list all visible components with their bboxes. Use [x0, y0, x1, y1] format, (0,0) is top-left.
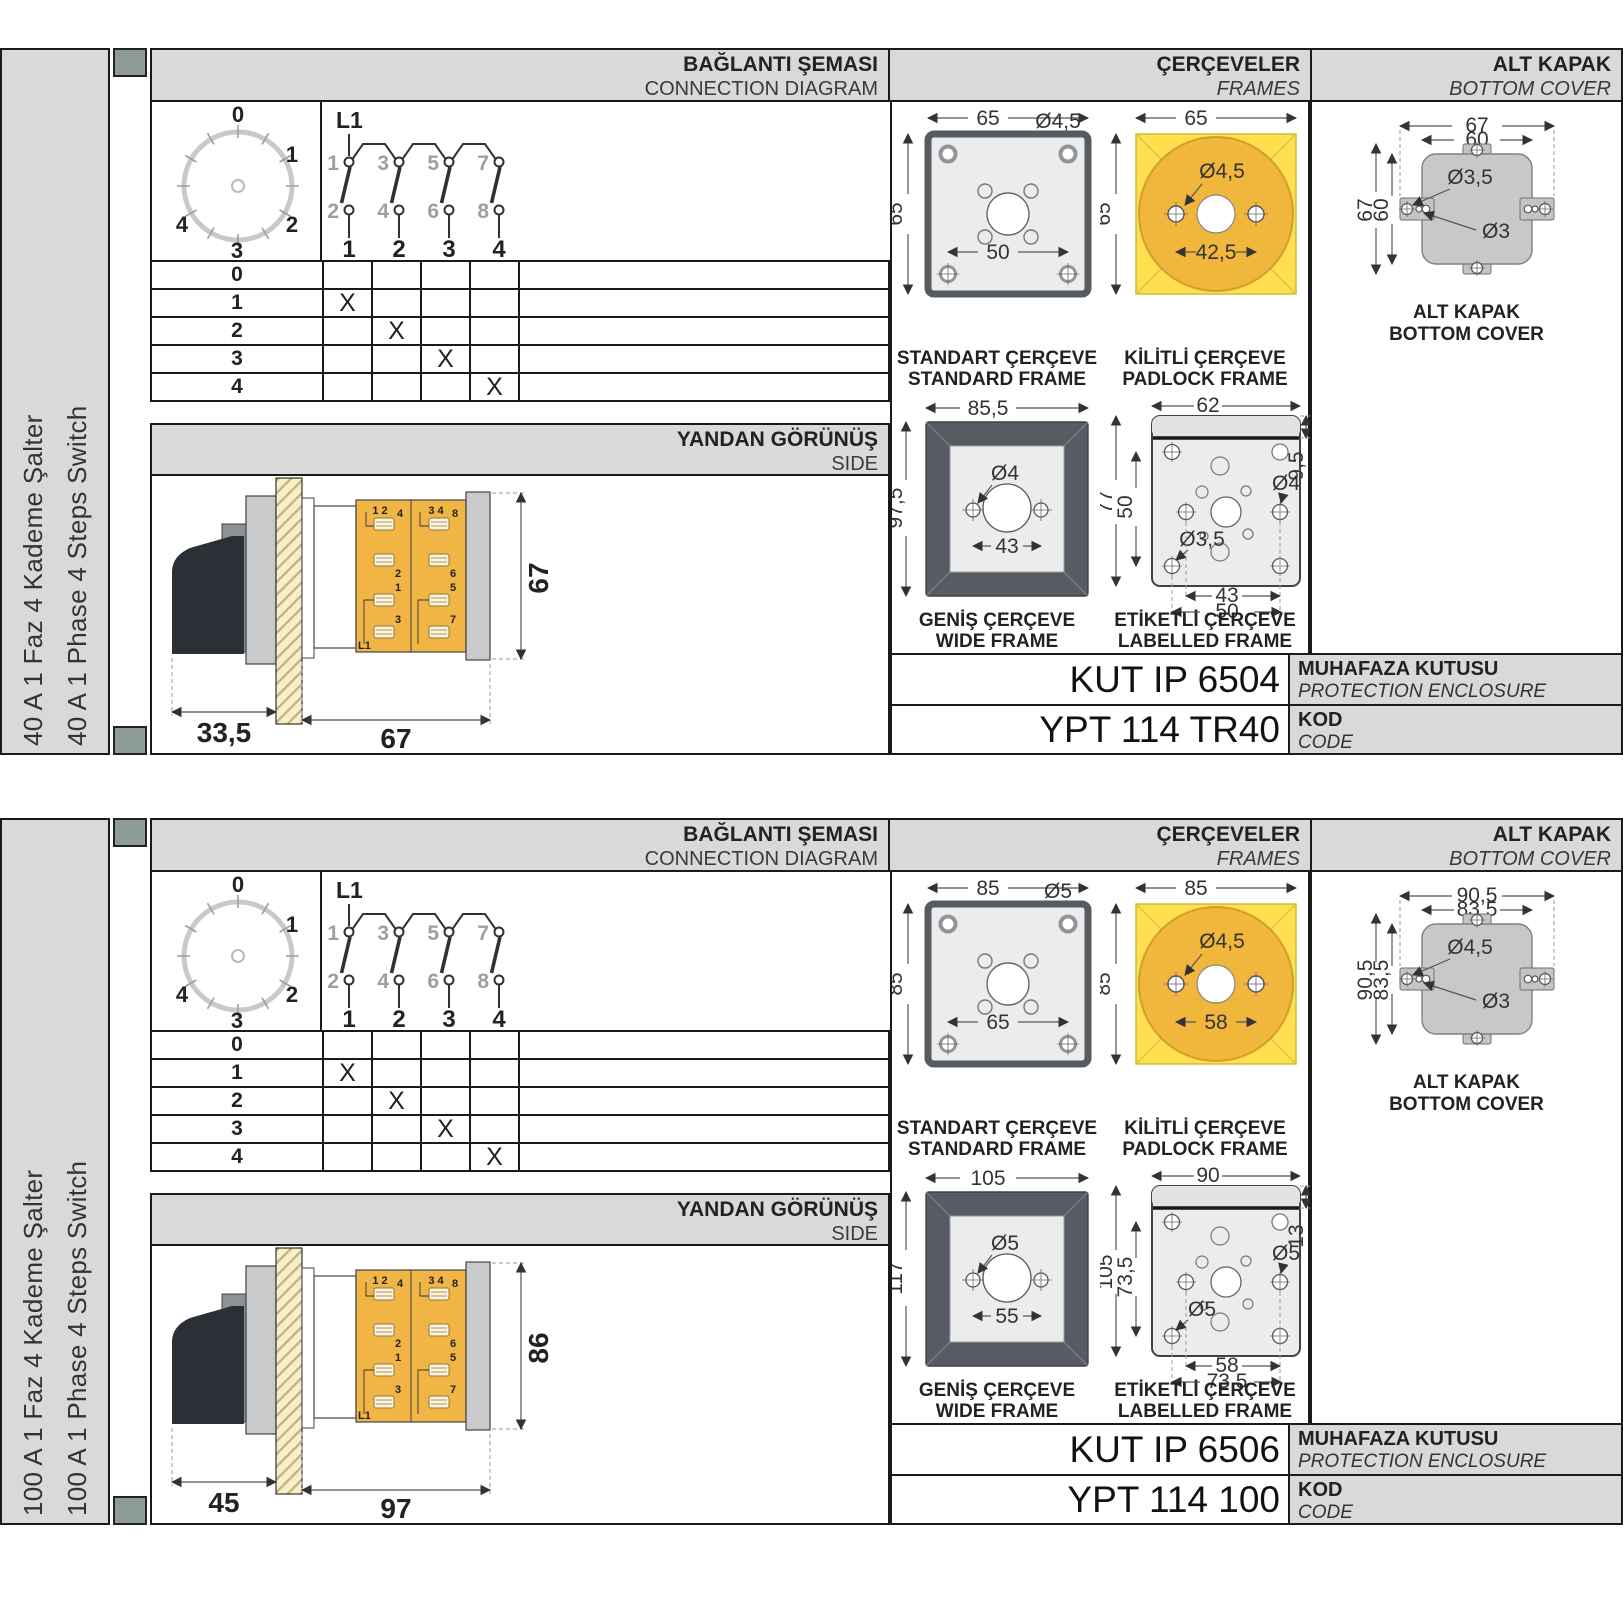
contact-mark — [471, 346, 520, 372]
step-number: 3 — [152, 346, 324, 372]
contact-mark — [422, 290, 471, 316]
step-number: 4 — [152, 374, 324, 400]
bottom-cover-drawing: 90,5 83,5 90,5 83,5 — [1312, 880, 1623, 1070]
std-center-hole — [987, 963, 1029, 1005]
contact-label-1: 1 — [327, 152, 339, 175]
contact-mark — [422, 1060, 471, 1086]
product-code: YPT 114 TR40 — [1039, 709, 1280, 750]
step-table-row: 4 X — [150, 372, 890, 402]
block-left-t2: 2 — [395, 1338, 401, 1350]
switch-schematic-cell: L1 — [320, 100, 892, 262]
section-content: BAĞLANTI ŞEMASI CONNECTION DIAGRAM ÇERÇE… — [150, 818, 1623, 1525]
height-dimension: 67 — [492, 493, 554, 659]
block-left-t1: 4 — [397, 508, 404, 520]
enclosure-label-en: PROTECTION ENCLOSURE — [1298, 681, 1621, 702]
side-view-drawing-cell: 1 2 4 2 1 3 L1 3 4 8 6 5 7 86 — [150, 1244, 890, 1525]
block-right-t3: 5 — [450, 582, 456, 594]
output-label-4: 4 — [492, 236, 506, 260]
lab-hole1-label: Ø4 — [1272, 472, 1300, 495]
contact-mark — [373, 1116, 422, 1142]
rear-plate — [466, 1262, 490, 1430]
wide-center-hole — [983, 484, 1031, 532]
contact-mark — [324, 1032, 373, 1058]
dial-pos-1: 1 — [286, 912, 298, 937]
phase-label: L1 — [336, 877, 363, 903]
output-label-2: 2 — [392, 1006, 405, 1030]
contact-mark — [422, 1088, 471, 1114]
lab-caption-tr: ETİKETLİ ÇERÇEVE — [1100, 610, 1310, 631]
output-label-2: 2 — [392, 236, 405, 260]
wide-caption-tr: GENİŞ ÇERÇEVE — [892, 610, 1102, 631]
contact-mark — [324, 1116, 373, 1142]
block-left-t4: 3 — [395, 1384, 401, 1396]
frames-panel: 85 Ø5 85 — [890, 870, 1310, 1425]
product-code-cell: YPT 114 100 — [890, 1474, 1290, 1525]
empty-cell — [520, 346, 888, 372]
dial-pos-3: 3 — [231, 238, 243, 260]
side-header-en: SIDE — [152, 1222, 878, 1246]
contact-mark — [324, 374, 373, 400]
product-section: 40 A 1 Faz 4 Kademe Şalter 40 A 1 Phase … — [0, 48, 1623, 755]
contact-label-4: 4 — [377, 200, 389, 223]
output-label-3: 3 — [442, 1006, 455, 1030]
wide-caption-tr: GENİŞ ÇERÇEVE — [892, 1380, 1102, 1401]
output-label-3: 3 — [442, 236, 455, 260]
labelled-frame-caption: ETİKETLİ ÇERÇEVE LABELLED FRAME — [1100, 610, 1310, 652]
std-height-label: 85 — [892, 972, 907, 995]
labelled-frame-block: 62 9,5 77 50 — [1100, 394, 1310, 656]
block-left-corner-label: 1 2 — [372, 1275, 387, 1287]
step-table-row: 3 X — [150, 344, 890, 374]
wide-center-hole — [983, 1254, 1031, 1302]
std-hole-label: Ø5 — [1044, 880, 1072, 903]
lab-top-band — [1152, 1186, 1300, 1208]
wide-width-label: 85,5 — [968, 397, 1009, 420]
contact-mark — [422, 262, 471, 288]
switch-schematic: L1 — [322, 872, 888, 1030]
step-table-row: 1 X — [150, 288, 890, 318]
step-table-row: 3 X — [150, 1114, 890, 1144]
output-label-1: 1 — [342, 1006, 355, 1030]
contact-mark — [373, 346, 422, 372]
block-right-corner-label: 3 4 — [428, 505, 444, 517]
empty-cell — [520, 374, 888, 400]
contact-label-4: 4 — [377, 970, 389, 993]
spacer-plate — [302, 498, 314, 658]
switch-body — [314, 1276, 356, 1418]
contact-mark: X — [373, 1088, 422, 1114]
labelled-frame-block: 90 13 105 73,5 — [1100, 1164, 1310, 1426]
code-label-cell: KOD CODE — [1288, 1474, 1623, 1525]
lab-hole1-label: Ø5 — [1272, 1242, 1300, 1265]
frames-header: ÇERÇEVELER FRAMES — [888, 818, 1312, 872]
rotary-dial-cell: 0 1 2 3 4 — [150, 870, 322, 1032]
dim-body-depth: 97 — [380, 1493, 411, 1523]
contact-label-8: 8 — [477, 970, 489, 993]
enclosure-label-tr: MUHAFAZA KUTUSU — [1298, 658, 1621, 681]
wide-frame-block: 85,5 97,5 Ø4 43 — [892, 394, 1102, 656]
front-plate — [246, 1266, 276, 1434]
standard-frame-caption: STANDART ÇERÇEVE STANDARD FRAME — [892, 348, 1102, 390]
lab-inner-height-label: 50 — [1114, 495, 1137, 518]
handle-dimension: 33,5 — [172, 658, 276, 748]
switch-handle — [172, 1306, 244, 1424]
rotary-dial-diagram: 0 1 2 3 4 — [152, 872, 320, 1030]
product-code: YPT 114 100 — [1067, 1479, 1280, 1520]
frames-header-en: FRAMES — [890, 77, 1300, 101]
connection-diagram-header: BAĞLANTI ŞEMASI CONNECTION DIAGRAM — [150, 48, 890, 102]
std-caption-en: STANDARD FRAME — [892, 369, 1102, 390]
dial-pos-0: 0 — [232, 872, 244, 897]
contact-mark — [373, 262, 422, 288]
contact-mark — [471, 290, 520, 316]
wide-spacing-label: 55 — [995, 1305, 1018, 1328]
body-dimension: 97 — [302, 1432, 490, 1523]
contact-mark — [324, 346, 373, 372]
lab-caption-tr: ETİKETLİ ÇERÇEVE — [1100, 1380, 1310, 1401]
wide-width-label: 105 — [970, 1167, 1005, 1190]
bottom-cover-caption: ALT KAPAK BOTTOM COVER — [1312, 1072, 1621, 1116]
std-center-hole — [987, 193, 1029, 235]
contact-label-7: 7 — [477, 922, 489, 945]
contact-label-8: 8 — [477, 200, 489, 223]
std-width-label: 65 — [976, 107, 999, 130]
cover-caption-tr: ALT KAPAK — [1312, 1072, 1621, 1094]
frames-header-tr: ÇERÇEVELER — [890, 822, 1300, 847]
phase-label: L1 — [336, 107, 363, 133]
dial-pos-2: 2 — [286, 982, 298, 1007]
side-view-drawing: 1 2 4 2 1 3 L1 3 4 8 6 5 7 86 — [152, 1246, 888, 1523]
padlock-frame-block: 65 65 Ø4,5 42,5 — [1100, 102, 1310, 394]
contact-label-7: 7 — [477, 152, 489, 175]
rotary-dial-cell: 0 1 2 3 4 — [150, 100, 322, 262]
side-header-en: SIDE — [152, 452, 878, 476]
empty-cell — [520, 1060, 888, 1086]
spacer-plate — [302, 1268, 314, 1428]
standard-frame-drawing: 85 Ø5 85 — [892, 872, 1102, 1120]
output-label-4: 4 — [492, 1006, 506, 1030]
enclosure-label-cell: MUHAFAZA KUTUSU PROTECTION ENCLOSURE — [1288, 1423, 1623, 1476]
pad-width-label: 85 — [1184, 877, 1207, 900]
rear-plate — [466, 492, 490, 660]
code-label-tr: KOD — [1298, 1479, 1621, 1502]
contact-label-6: 6 — [427, 970, 439, 993]
lab-hole2-label: Ø5 — [1188, 1298, 1216, 1321]
handle-dimension: 45 — [172, 1428, 276, 1518]
std-hole-tr — [1061, 147, 1076, 162]
product-side-panel: 40 A 1 Faz 4 Kademe Şalter 40 A 1 Phase … — [0, 48, 110, 755]
empty-cell — [520, 1116, 888, 1142]
lab-caption-en: LABELLED FRAME — [1100, 1401, 1310, 1422]
pad-spacing-label: 42,5 — [1196, 241, 1237, 264]
contact-label-6: 6 — [427, 200, 439, 223]
dim-body-height: 67 — [523, 562, 554, 593]
std-hole-tl — [941, 917, 956, 932]
contact-label-1: 1 — [327, 922, 339, 945]
cover-header-tr: ALT KAPAK — [1312, 822, 1611, 847]
contact-mark: X — [422, 346, 471, 372]
enclosure-code-cell: KUT IP 6504 — [890, 653, 1290, 706]
contact-mark — [471, 318, 520, 344]
cover-caption-en: BOTTOM COVER — [1312, 1094, 1621, 1116]
cover-hole1-label: Ø3,5 — [1447, 166, 1493, 189]
block-right-t1: 8 — [452, 508, 458, 520]
switch-schematic: L1 — [322, 102, 888, 260]
pad-width-label: 65 — [1184, 107, 1207, 130]
connection-header-tr: BAĞLANTI ŞEMASI — [152, 52, 878, 77]
cover-hole1-label: Ø4,5 — [1447, 936, 1493, 959]
step-number: 4 — [152, 1144, 324, 1170]
product-code-cell: YPT 114 TR40 — [890, 704, 1290, 755]
std-height-label: 65 — [892, 202, 907, 225]
step-number: 0 — [152, 262, 324, 288]
bottom-cover-panel: 67 60 67 60 — [1310, 100, 1623, 655]
bottom-cover-caption: ALT KAPAK BOTTOM COVER — [1312, 302, 1621, 346]
bottom-cover-panel: 90,5 83,5 90,5 83,5 — [1310, 870, 1623, 1425]
block-left-t1: 4 — [397, 1278, 404, 1290]
output-label-1: 1 — [342, 236, 355, 260]
cover-caption-en: BOTTOM COVER — [1312, 324, 1621, 346]
empty-cell — [520, 1144, 888, 1170]
padlock-frame-drawing: 65 65 Ø4,5 42,5 — [1100, 102, 1310, 350]
side-header-tr: YANDAN GÖRÜNÜŞ — [152, 427, 878, 452]
product-title-english: 100 A 1 Phase 4 Steps Switch — [62, 1161, 93, 1516]
cover-header-en: BOTTOM COVER — [1312, 77, 1611, 101]
step-number: 2 — [152, 1088, 324, 1114]
contact-mark: X — [324, 290, 373, 316]
contact-mark — [422, 1144, 471, 1170]
code-label-en: CODE — [1298, 732, 1621, 753]
dim-handle-depth: 33,5 — [197, 717, 252, 748]
code-label-cell: KOD CODE — [1288, 704, 1623, 755]
dial-pos-2: 2 — [286, 212, 298, 237]
contact-mark: X — [471, 1144, 520, 1170]
section-content: BAĞLANTI ŞEMASI CONNECTION DIAGRAM ÇERÇE… — [150, 48, 1623, 755]
dial-pos-3: 3 — [231, 1008, 243, 1030]
step-table-row: 2 X — [150, 1086, 890, 1116]
connection-header-en: CONNECTION DIAGRAM — [152, 847, 878, 871]
frames-panel: 65 Ø4,5 65 — [890, 100, 1310, 655]
dim-body-depth: 67 — [380, 723, 411, 753]
connection-diagram-header: BAĞLANTI ŞEMASI CONNECTION DIAGRAM — [150, 818, 890, 872]
contact-mark — [471, 1032, 520, 1058]
side-view-drawing-cell: 1 2 4 2 1 3 L1 3 4 8 6 5 7 67 — [150, 474, 890, 755]
std-spacing-label: 65 — [986, 1011, 1009, 1034]
block-left-t3: 1 — [395, 582, 401, 594]
bridge-links — [353, 914, 496, 929]
contact-mark — [471, 1116, 520, 1142]
step-number: 2 — [152, 318, 324, 344]
padlock-frame-drawing: 85 85 Ø4,5 58 — [1100, 872, 1310, 1120]
block-right-t4: 7 — [450, 1384, 456, 1396]
cover-height2-label: 60 — [1370, 198, 1393, 221]
block-left-phase: L1 — [358, 1410, 371, 1422]
pad-hole-label: Ø4,5 — [1199, 930, 1245, 953]
step-table-row: 0 — [150, 260, 890, 290]
wide-frame-drawing: 105 117 Ø5 55 — [892, 1164, 1102, 1382]
empty-cell — [520, 1032, 888, 1058]
dial-ticks — [177, 125, 299, 247]
enclosure-code-cell: KUT IP 6506 — [890, 1423, 1290, 1476]
step-number: 0 — [152, 1032, 324, 1058]
rotary-dial-diagram: 0 1 2 3 4 — [152, 102, 320, 260]
pad-spacing-label: 58 — [1204, 1011, 1227, 1034]
std-width-label: 85 — [976, 877, 999, 900]
catalog-page: 40 A 1 Faz 4 Kademe Şalter 40 A 1 Phase … — [0, 0, 1623, 1623]
dial-pos-1: 1 — [286, 142, 298, 167]
block-left-t4: 3 — [395, 614, 401, 626]
wide-hole-label: Ø5 — [991, 1232, 1019, 1255]
body-dimension: 67 — [302, 662, 490, 753]
contact-mark — [373, 290, 422, 316]
contact-mark — [373, 1060, 422, 1086]
switch-schematic-cell: L1 — [320, 870, 892, 1032]
pad-caption-tr: KİLİTLİ ÇERÇEVE — [1100, 348, 1310, 369]
contact-mark — [324, 1088, 373, 1114]
labelled-frame-caption: ETİKETLİ ÇERÇEVE LABELLED FRAME — [1100, 1380, 1310, 1422]
wide-height-label: 97,5 — [892, 488, 907, 529]
side-header-tr: YANDAN GÖRÜNÜŞ — [152, 1197, 878, 1222]
pad-height-label: 65 — [1100, 202, 1115, 225]
front-plate — [246, 496, 276, 664]
padlock-frame-caption: KİLİTLİ ÇERÇEVE PADLOCK FRAME — [1100, 348, 1310, 390]
block-right-t1: 8 — [452, 1278, 458, 1290]
padlock-frame-caption: KİLİTLİ ÇERÇEVE PADLOCK FRAME — [1100, 1118, 1310, 1160]
enclosure-code: KUT IP 6504 — [1070, 659, 1281, 700]
wide-frame-caption: GENİŞ ÇERÇEVE WIDE FRAME — [892, 1380, 1102, 1422]
dial-center — [232, 180, 244, 192]
wide-spacing-label: 43 — [995, 535, 1018, 558]
wide-frame-drawing: 85,5 97,5 Ø4 43 — [892, 394, 1102, 612]
mounting-panel-hatched — [276, 478, 302, 724]
contact-mark — [373, 374, 422, 400]
cover-caption-tr: ALT KAPAK — [1312, 302, 1621, 324]
wide-caption-en: WIDE FRAME — [892, 631, 1102, 652]
enclosure-code: KUT IP 6506 — [1070, 1429, 1281, 1470]
contact-label-3: 3 — [377, 922, 389, 945]
mounting-panel-hatched — [276, 1248, 302, 1494]
block-right-corner-label: 3 4 — [428, 1275, 444, 1287]
wide-caption-en: WIDE FRAME — [892, 1401, 1102, 1422]
dial-ring — [184, 132, 292, 240]
connection-header-en: CONNECTION DIAGRAM — [152, 77, 878, 101]
wide-frame-block: 105 117 Ø5 55 — [892, 1164, 1102, 1426]
step-table-row: 0 — [150, 1030, 890, 1060]
standard-frame-drawing: 65 Ø4,5 65 — [892, 102, 1102, 350]
dial-center — [232, 950, 244, 962]
block-left-phase: L1 — [358, 640, 371, 652]
contact-mark: X — [324, 1060, 373, 1086]
wide-hole-label: Ø4 — [991, 462, 1019, 485]
dim-handle-depth: 45 — [208, 1487, 239, 1518]
frames-header: ÇERÇEVELER FRAMES — [888, 48, 1312, 102]
step-number: 1 — [152, 1060, 324, 1086]
side-view-drawing: 1 2 4 2 1 3 L1 3 4 8 6 5 7 67 — [152, 476, 888, 753]
dial-pos-4: 4 — [176, 212, 189, 237]
enclosure-label-en: PROTECTION ENCLOSURE — [1298, 1451, 1621, 1472]
product-section: 100 A 1 Faz 4 Kademe Şalter 100 A 1 Phas… — [0, 818, 1623, 1525]
standard-frame-block: 85 Ø5 85 — [892, 872, 1102, 1164]
binding-mark-top — [113, 818, 147, 847]
wide-height-label: 117 — [892, 1261, 907, 1294]
bottom-cover-header: ALT KAPAK BOTTOM COVER — [1310, 818, 1623, 872]
lab-center-hole — [1211, 497, 1241, 527]
dial-ticks — [177, 895, 299, 1017]
labelled-frame-drawing: 62 9,5 77 50 — [1100, 394, 1310, 620]
pad-center-hole — [1197, 195, 1235, 233]
contact-label-5: 5 — [427, 922, 439, 945]
cover-header-en: BOTTOM COVER — [1312, 847, 1611, 871]
pad-caption-tr: KİLİTLİ ÇERÇEVE — [1100, 1118, 1310, 1139]
dim-body-height: 86 — [523, 1332, 554, 1363]
contact-mark: X — [373, 318, 422, 344]
side-view-header: YANDAN GÖRÜNÜŞ SIDE — [150, 1193, 890, 1246]
contact-mark — [373, 1032, 422, 1058]
cover-hole2-label: Ø3 — [1482, 220, 1510, 243]
lab-hole-tr — [1272, 444, 1288, 460]
contact-mark — [471, 1060, 520, 1086]
switch-body — [314, 506, 356, 648]
frames-header-tr: ÇERÇEVELER — [890, 52, 1300, 77]
lab-center-hole — [1211, 1267, 1241, 1297]
pad-hole-label: Ø4,5 — [1199, 160, 1245, 183]
connection-header-tr: BAĞLANTI ŞEMASI — [152, 822, 878, 847]
cover-height2-label: 83,5 — [1370, 960, 1393, 1001]
pad-height-label: 85 — [1100, 972, 1115, 995]
standard-frame-block: 65 Ø4,5 65 — [892, 102, 1102, 394]
step-table-row: 4 X — [150, 1142, 890, 1172]
binding-mark-bottom — [113, 726, 147, 755]
block-right-t2: 6 — [450, 1338, 456, 1350]
switch-handle — [172, 536, 244, 654]
std-hole-tr — [1061, 917, 1076, 932]
contact-mark — [471, 1088, 520, 1114]
labelled-frame-drawing: 90 13 105 73,5 — [1100, 1164, 1310, 1390]
standard-frame-caption: STANDART ÇERÇEVE STANDARD FRAME — [892, 1118, 1102, 1160]
code-label-tr: KOD — [1298, 709, 1621, 732]
block-right-t3: 5 — [450, 1352, 456, 1364]
std-spacing-label: 50 — [986, 241, 1009, 264]
bottom-cover-drawing: 67 60 67 60 — [1312, 110, 1623, 300]
contact-mark — [471, 262, 520, 288]
height-dimension: 86 — [492, 1263, 554, 1429]
pad-center-hole — [1197, 965, 1235, 1003]
product-title-english: 40 A 1 Phase 4 Steps Switch — [62, 405, 93, 746]
binding-mark-top — [113, 48, 147, 77]
enclosure-label-cell: MUHAFAZA KUTUSU PROTECTION ENCLOSURE — [1288, 653, 1623, 706]
contact-mark — [422, 318, 471, 344]
block-right-t2: 6 — [450, 568, 456, 580]
block-left-t2: 2 — [395, 568, 401, 580]
dial-ring — [184, 902, 292, 1010]
contact-mark: X — [422, 1116, 471, 1142]
product-side-panel: 100 A 1 Faz 4 Kademe Şalter 100 A 1 Phas… — [0, 818, 110, 1525]
bottom-cover-header: ALT KAPAK BOTTOM COVER — [1310, 48, 1623, 102]
lab-inner-height-label: 73,5 — [1114, 1257, 1137, 1298]
step-number: 3 — [152, 1116, 324, 1142]
std-caption-en: STANDARD FRAME — [892, 1139, 1102, 1160]
lab-caption-en: LABELLED FRAME — [1100, 631, 1310, 652]
lab-width-label: 90 — [1196, 1164, 1219, 1187]
std-hole-label: Ø4,5 — [1035, 110, 1081, 133]
code-label-en: CODE — [1298, 1502, 1621, 1523]
step-number: 1 — [152, 290, 324, 316]
contact-label-5: 5 — [427, 152, 439, 175]
contact-mark — [373, 1144, 422, 1170]
product-title-turkish: 100 A 1 Faz 4 Kademe Şalter — [18, 1170, 49, 1516]
block-left-t3: 1 — [395, 1352, 401, 1364]
contact-mark: X — [471, 374, 520, 400]
